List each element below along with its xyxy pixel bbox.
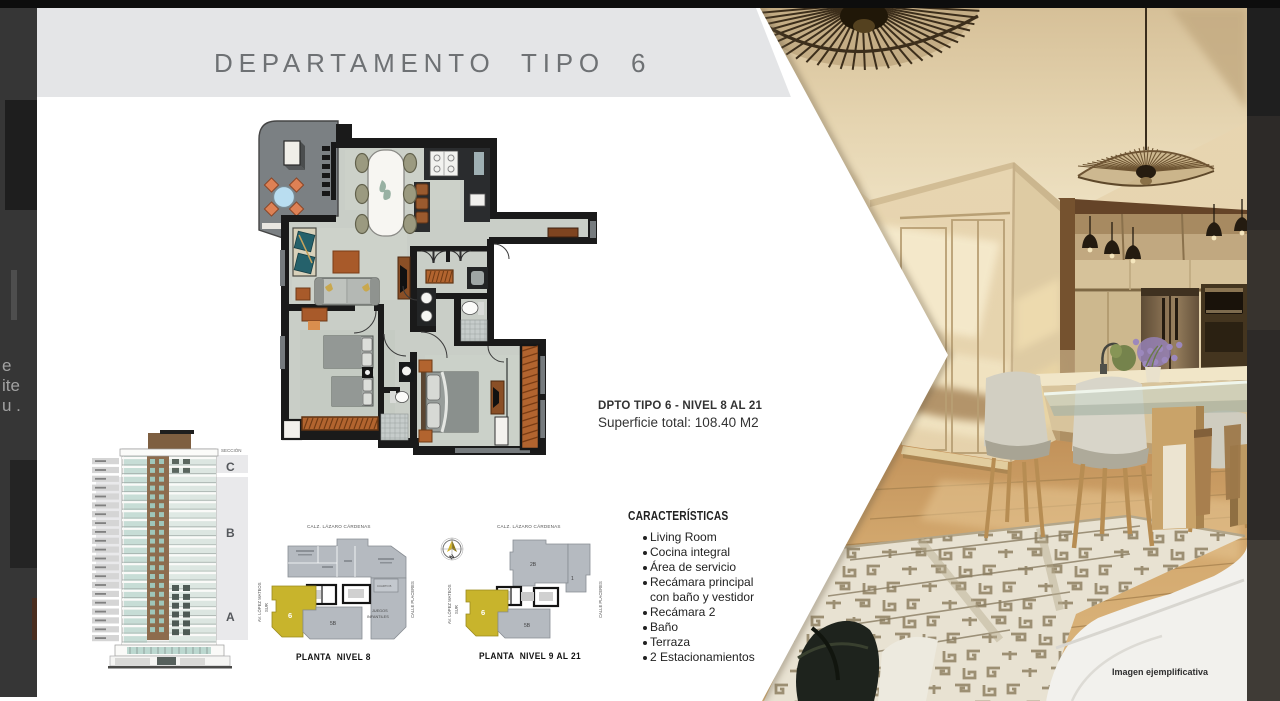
svg-text:JUEGOS: JUEGOS <box>372 609 388 613</box>
svg-text:5B: 5B <box>524 623 531 629</box>
svg-text:5B: 5B <box>330 621 337 627</box>
svg-text:6: 6 <box>481 608 485 617</box>
svg-text:CUARTO B: CUARTO B <box>377 584 391 588</box>
svg-text:A: A <box>226 610 235 624</box>
svg-text:SUR: SUR <box>454 605 459 614</box>
svg-text:CALLE PLACERES: CALLE PLACERES <box>598 581 603 618</box>
svg-text:6: 6 <box>288 611 292 620</box>
svg-text:SUR: SUR <box>264 603 269 612</box>
svg-text:CALLE PLACERES: CALLE PLACERES <box>410 581 415 618</box>
svg-text:CALZ. LÁZARO CÁRDENAS: CALZ. LÁZARO CÁRDENAS <box>497 523 561 529</box>
svg-text:SECCIÓN: SECCIÓN <box>221 447 242 453</box>
svg-text:C: C <box>226 460 235 474</box>
svg-text:N: N <box>449 554 456 561</box>
svg-text:2B: 2B <box>530 562 537 568</box>
svg-text:1: 1 <box>571 576 574 582</box>
svg-text:CALZ. LÁZARO CÁRDENAS: CALZ. LÁZARO CÁRDENAS <box>307 523 371 529</box>
svg-text:AV. LÓPEZ MATEOS: AV. LÓPEZ MATEOS <box>447 584 452 624</box>
svg-text:B: B <box>226 526 235 540</box>
svg-text:INFANTILES: INFANTILES <box>367 615 389 619</box>
svg-text:AV. LÓPEZ MATEOS: AV. LÓPEZ MATEOS <box>257 582 262 622</box>
